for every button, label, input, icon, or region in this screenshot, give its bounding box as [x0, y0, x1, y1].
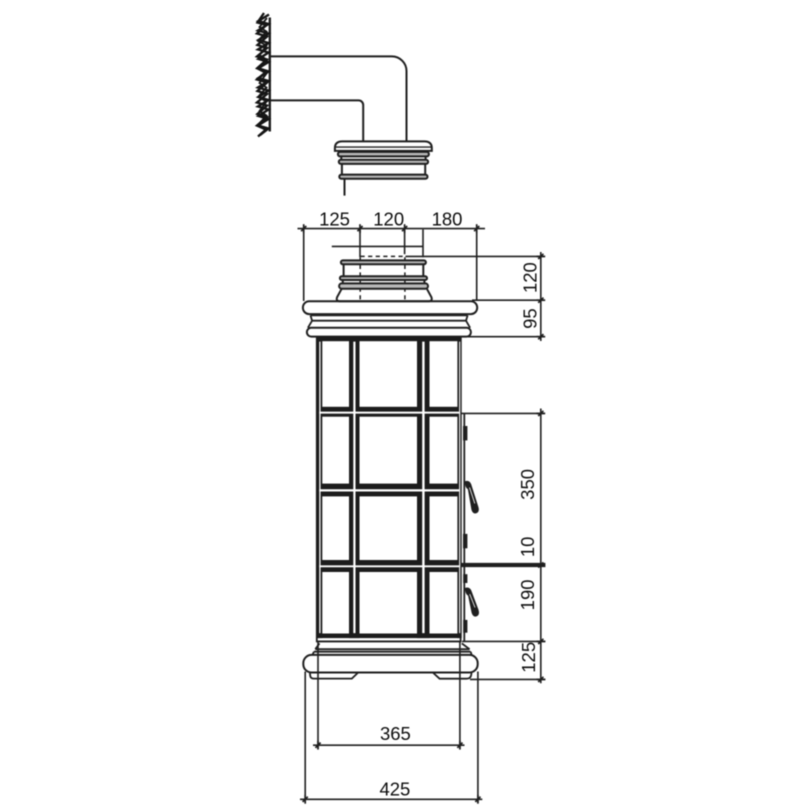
svg-text:95: 95	[519, 308, 540, 329]
svg-text:125: 125	[319, 209, 350, 230]
svg-text:120: 120	[373, 209, 404, 230]
svg-text:180: 180	[432, 209, 463, 230]
svg-text:350: 350	[517, 469, 538, 500]
svg-text:120: 120	[519, 262, 540, 293]
svg-text:365: 365	[380, 723, 411, 744]
svg-text:125: 125	[518, 642, 539, 673]
svg-text:190: 190	[517, 579, 538, 610]
svg-text:425: 425	[379, 779, 410, 800]
svg-text:10: 10	[517, 537, 538, 558]
